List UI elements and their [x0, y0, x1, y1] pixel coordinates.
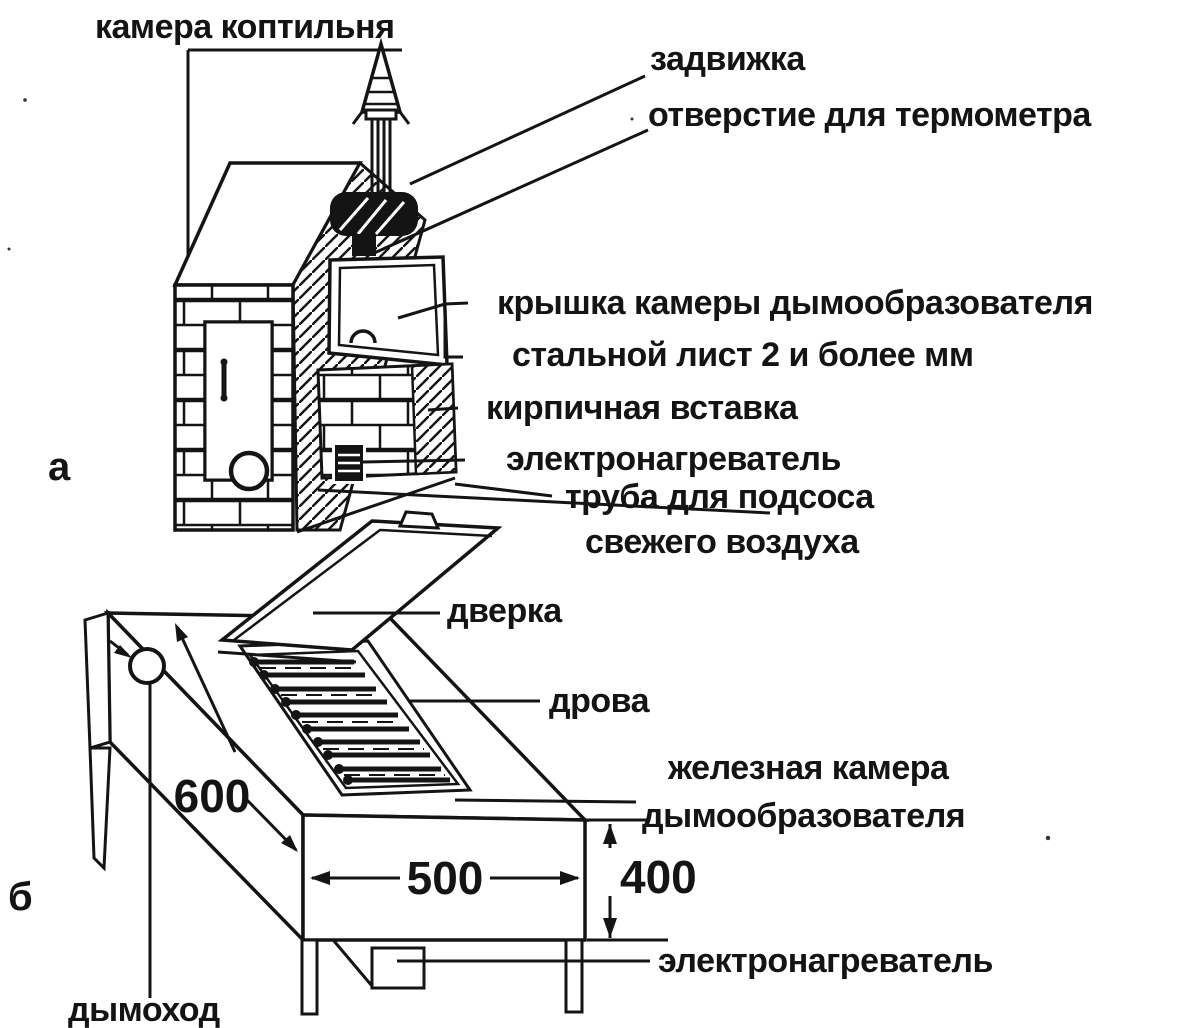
brick-insert-hatched-side	[412, 364, 456, 474]
label-air-intake-line2: свежего воздуха	[585, 523, 860, 561]
open-lid	[222, 521, 498, 650]
label-firewood: дрова	[549, 682, 651, 720]
smokehouse-diagram-page: камера коптильня задвижка отверстие для …	[0, 0, 1188, 1028]
door-handle-dot-top	[221, 359, 228, 366]
box-end-face	[85, 613, 110, 748]
leader-thermometer-hole	[372, 130, 648, 254]
label-chimney: дымоход	[68, 991, 220, 1028]
label-heater-a: электронагреватель	[506, 440, 841, 478]
label-door: дверка	[447, 592, 563, 630]
dim-400-arrow-up	[603, 824, 617, 844]
leader-iron-chamber	[455, 800, 636, 802]
label-iron-chamber-line2: дымообразователя	[642, 797, 965, 835]
dim-500-value: 500	[407, 852, 484, 904]
back-left-leg	[90, 748, 110, 868]
label-thermometer-hole: отверстие для термометра	[648, 96, 1092, 134]
label-steel-sheet: стальной лист 2 и более мм	[512, 336, 973, 374]
leader-brick-insert	[428, 408, 458, 410]
part-a-marker: а	[48, 445, 71, 489]
heater-b-bracket	[334, 941, 372, 986]
front-left-leg	[302, 940, 317, 1014]
dim-400-value: 400	[620, 851, 697, 903]
front-right-leg	[566, 940, 582, 1012]
label-air-intake-line1: труба для подсоса	[565, 478, 875, 516]
label-heater-b: электронагреватель	[658, 942, 993, 980]
label-smoking-chamber: камера коптильня	[95, 8, 394, 46]
door-handle-dot-bottom	[221, 395, 228, 402]
leader-heater-a	[362, 460, 465, 462]
heater-b-box	[372, 948, 424, 988]
label-damper: задвижка	[650, 40, 806, 78]
pipe-collar	[366, 110, 396, 119]
smokehouse-diagram: камера коптильня задвижка отверстие для …	[0, 0, 1188, 1028]
lid-handle-tab	[400, 512, 438, 528]
label-iron-chamber-line1: железная камера	[667, 749, 950, 787]
leader-damper	[410, 76, 645, 184]
diagram-b-metal-generator	[85, 512, 668, 1014]
leader-air-intake	[455, 484, 552, 496]
dim-600-value: 600	[174, 770, 251, 822]
smoke-outlet-hole	[231, 453, 267, 489]
dim-400-arrow-down	[603, 918, 617, 938]
label-brick-insert: кирпичная вставка	[486, 389, 799, 427]
chimney-hole	[130, 649, 164, 683]
part-b-marker: б	[8, 875, 33, 919]
label-smoke-chamber-lid: крышка камеры дымообразователя	[497, 284, 1093, 322]
